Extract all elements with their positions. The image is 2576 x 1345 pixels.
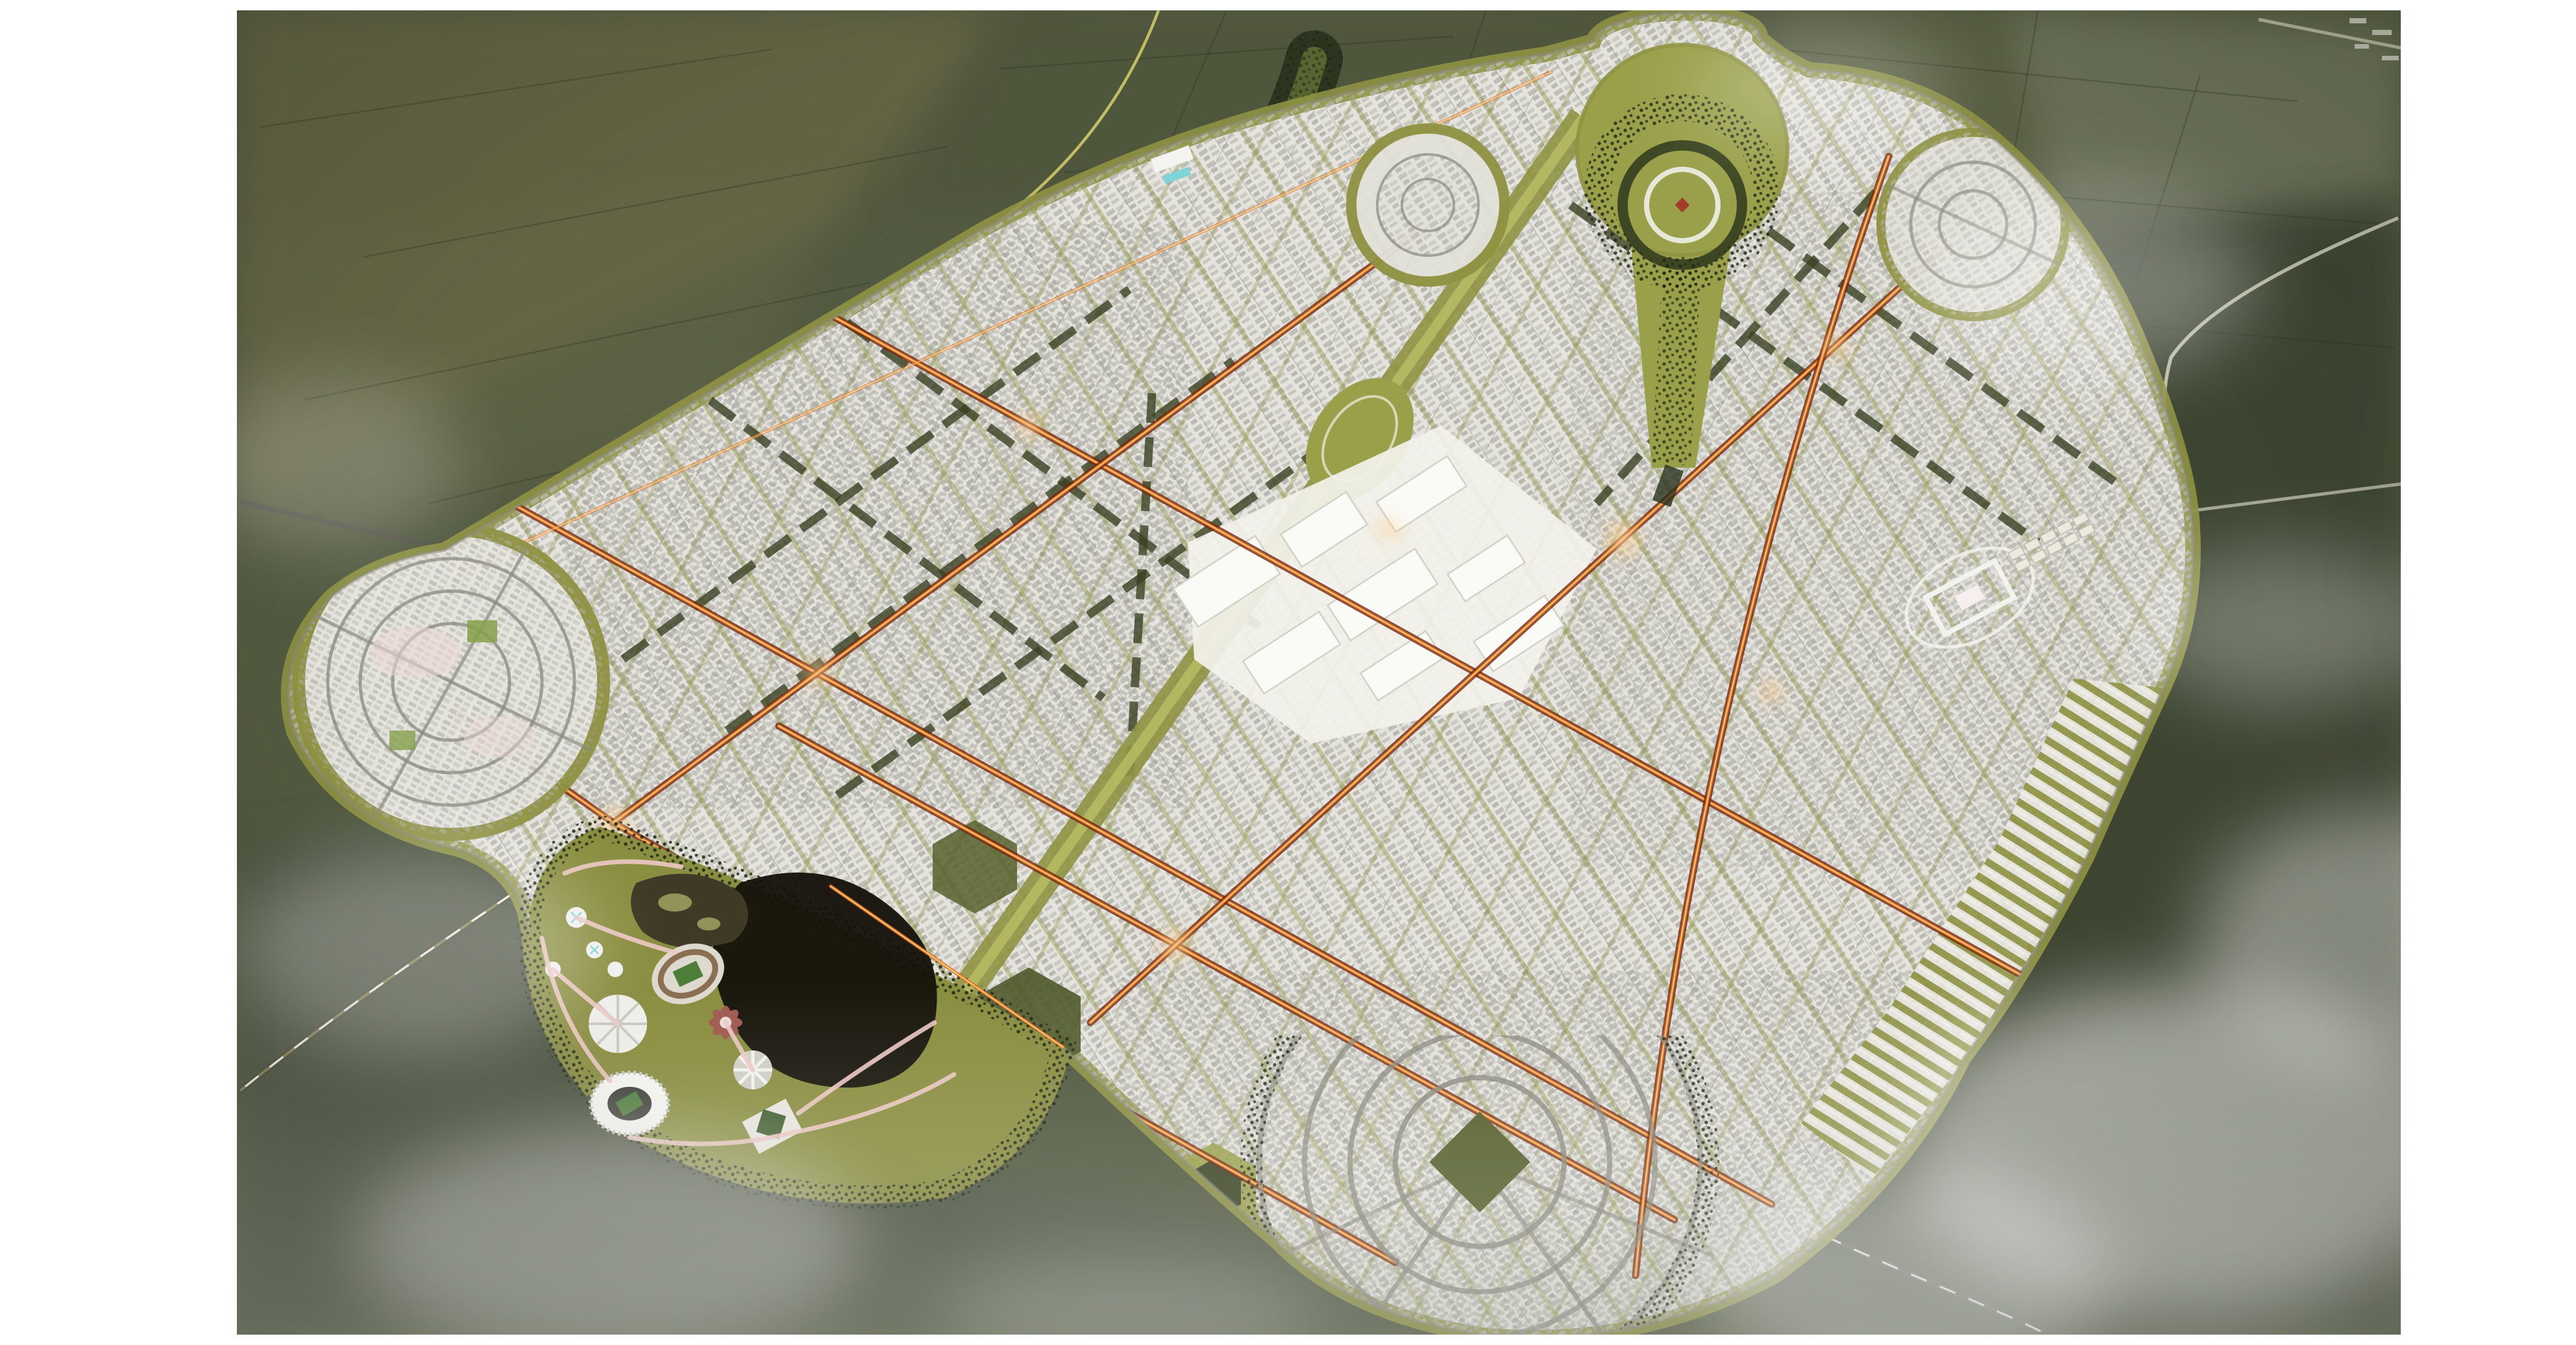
right-margin <box>2401 10 2576 1335</box>
vignette <box>237 10 2401 1335</box>
left-margin <box>26 10 237 1335</box>
aerial-city-render <box>26 10 2576 1335</box>
render-content <box>201 10 2551 1335</box>
render-canvas <box>26 10 2576 1335</box>
